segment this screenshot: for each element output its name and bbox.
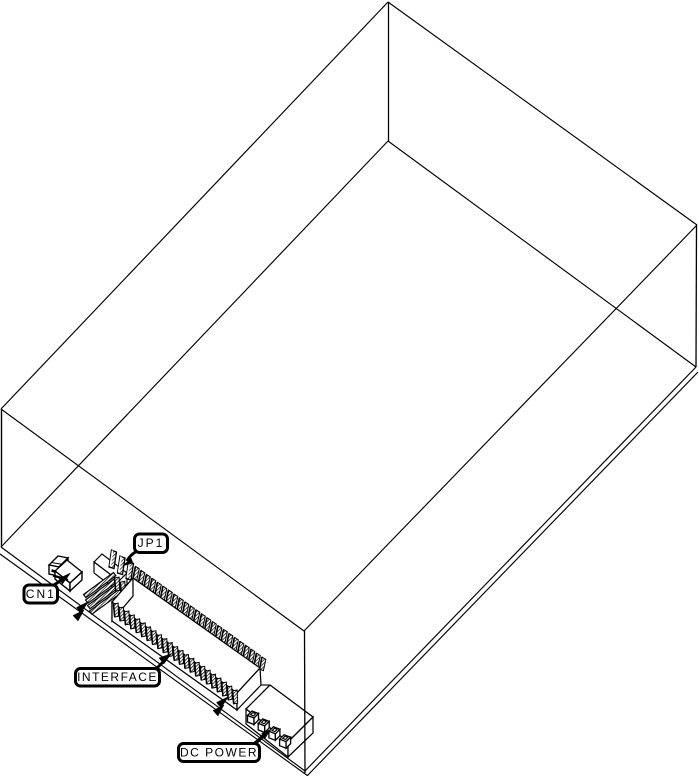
svg-text:INTERFACE: INTERFACE bbox=[77, 670, 158, 684]
svg-text:DC POWER: DC POWER bbox=[180, 746, 258, 760]
svg-text:JP1: JP1 bbox=[138, 536, 165, 550]
svg-text:CN1: CN1 bbox=[26, 587, 56, 601]
